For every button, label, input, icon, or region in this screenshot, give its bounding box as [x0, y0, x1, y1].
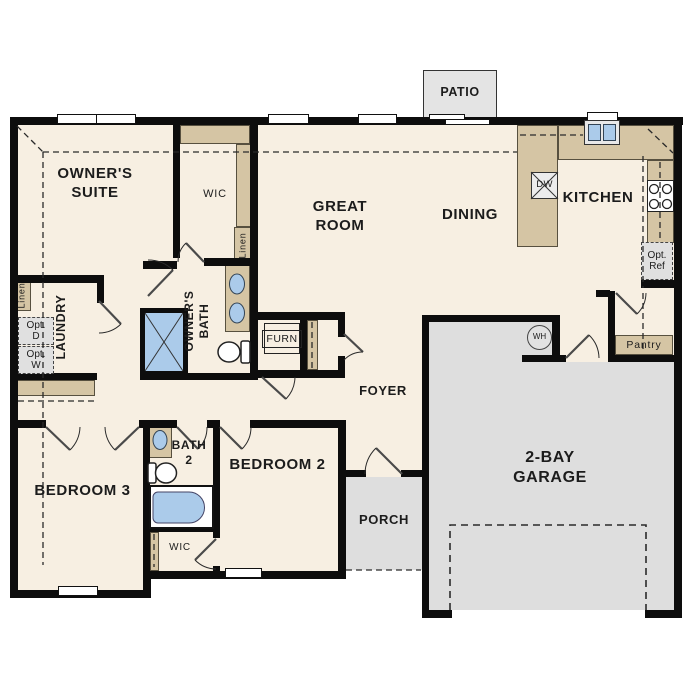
- owners-vanity: [225, 265, 250, 332]
- room-label-owners-suite: OWNER'S SUITE: [30, 165, 160, 203]
- sink-basin: [588, 124, 601, 141]
- room-label-foyer: FOYER: [347, 383, 419, 399]
- bath2-line1: BATH: [164, 438, 214, 453]
- sink-basin: [603, 124, 616, 141]
- wall-segment: [250, 420, 345, 428]
- window: [96, 114, 136, 124]
- wall-segment: [10, 117, 18, 598]
- wall-segment: [674, 117, 682, 618]
- shower: [140, 308, 188, 376]
- wall-segment: [608, 355, 674, 362]
- room-label-kitchen: KITCHEN: [548, 189, 648, 208]
- room-label-wic-bedroom: WIC: [160, 542, 200, 555]
- room-label-pantry: Pantry: [616, 339, 672, 352]
- window: [225, 568, 262, 578]
- wall-segment: [422, 315, 429, 618]
- wall-segment: [345, 470, 366, 477]
- wall-segment: [145, 525, 215, 532]
- room-label-patio: PATIO: [423, 85, 497, 101]
- wall-segment: [250, 125, 258, 320]
- room-label-owners-bath: OWNER'S BATH: [182, 289, 212, 353]
- opt-washer-label-1: Opt.: [27, 349, 46, 360]
- wall-segment: [422, 315, 559, 322]
- room-label-laundry: LAUNDRY: [54, 292, 70, 362]
- wall-segment: [401, 470, 422, 477]
- opt-washer-label-2: W: [31, 360, 40, 371]
- range: [647, 180, 674, 212]
- owners-suite-line1: OWNER'S: [30, 165, 160, 184]
- fixture-label-linen-hall: Linen: [17, 280, 28, 312]
- wic-shelf-top: [180, 125, 250, 144]
- bath2-line2: 2: [164, 453, 214, 468]
- fixture-label-dw: DW: [530, 179, 559, 191]
- opt-washer-box: Opt. W: [18, 346, 54, 374]
- wall-segment: [213, 428, 220, 538]
- wall-segment: [143, 261, 177, 269]
- wall-segment: [17, 373, 97, 380]
- hall-closet-shelf: [17, 380, 95, 396]
- room-label-dining: DINING: [420, 206, 520, 225]
- wic2-shelf: [150, 532, 159, 571]
- wall-segment: [139, 420, 177, 428]
- owners-suite-line2: SUITE: [30, 184, 160, 203]
- room-label-bedroom3: BEDROOM 3: [20, 482, 145, 501]
- wall-segment: [645, 610, 682, 618]
- opt-dryer-label-2: D: [32, 331, 39, 342]
- wall-segment: [250, 370, 345, 378]
- wall-segment: [641, 280, 674, 288]
- furnace-box: FURN: [264, 323, 300, 354]
- great-room-line1: GREAT: [280, 198, 400, 217]
- wall-segment: [17, 275, 100, 283]
- room-label-bedroom2: BEDROOM 2: [215, 456, 340, 475]
- wall-segment: [338, 313, 345, 337]
- garage-line1: 2-BAY: [490, 448, 610, 468]
- sliding-door: [445, 119, 490, 125]
- opt-dryer-box: Opt. D: [18, 317, 54, 345]
- room-label-bath2: BATH 2: [164, 438, 214, 468]
- wall-segment: [143, 428, 150, 590]
- window: [58, 586, 98, 596]
- garage-line2: GARAGE: [490, 468, 610, 488]
- wall-segment: [608, 291, 615, 362]
- coat-closet-shelf: [307, 320, 318, 370]
- wall-segment: [338, 420, 346, 579]
- wall-segment: [97, 275, 104, 303]
- window: [57, 114, 97, 124]
- wall-segment: [213, 566, 220, 575]
- floor-bedroom3: [17, 420, 150, 592]
- wic-shelf-right: [236, 144, 251, 227]
- wall-segment: [522, 355, 566, 362]
- opt-dryer-label-1: Opt.: [27, 320, 46, 331]
- owners-bath-line2: BATH: [197, 290, 212, 351]
- window: [268, 114, 309, 124]
- furnace-label: FURN: [262, 330, 301, 348]
- wall-segment: [338, 356, 345, 378]
- wall-segment: [596, 290, 610, 297]
- opt-fridge-box: Opt. Ref: [641, 242, 673, 280]
- room-label-garage: 2-BAY GARAGE: [490, 448, 610, 488]
- water-heater-label: WH: [533, 332, 546, 341]
- fixture-label-linen-wic: Linen: [238, 230, 249, 262]
- opt-fridge-label-1: Opt.: [648, 250, 667, 261]
- wall-segment: [250, 312, 345, 320]
- owners-bath-line1: OWNER'S: [182, 290, 197, 351]
- opt-fridge-label-2: Ref: [649, 261, 665, 272]
- great-room-line2: ROOM: [280, 217, 400, 236]
- wall-segment: [207, 420, 220, 428]
- wall-segment: [10, 420, 46, 428]
- wall-segment: [173, 125, 180, 258]
- room-label-great-room: GREAT ROOM: [280, 198, 400, 236]
- room-label-porch: PORCH: [348, 512, 420, 528]
- window: [358, 114, 397, 124]
- room-label-wic-owners: WIC: [185, 188, 245, 202]
- water-heater: WH: [527, 325, 552, 350]
- floor-plan: Opt. Ref Opt. D Opt. W FURN WH: [0, 0, 687, 687]
